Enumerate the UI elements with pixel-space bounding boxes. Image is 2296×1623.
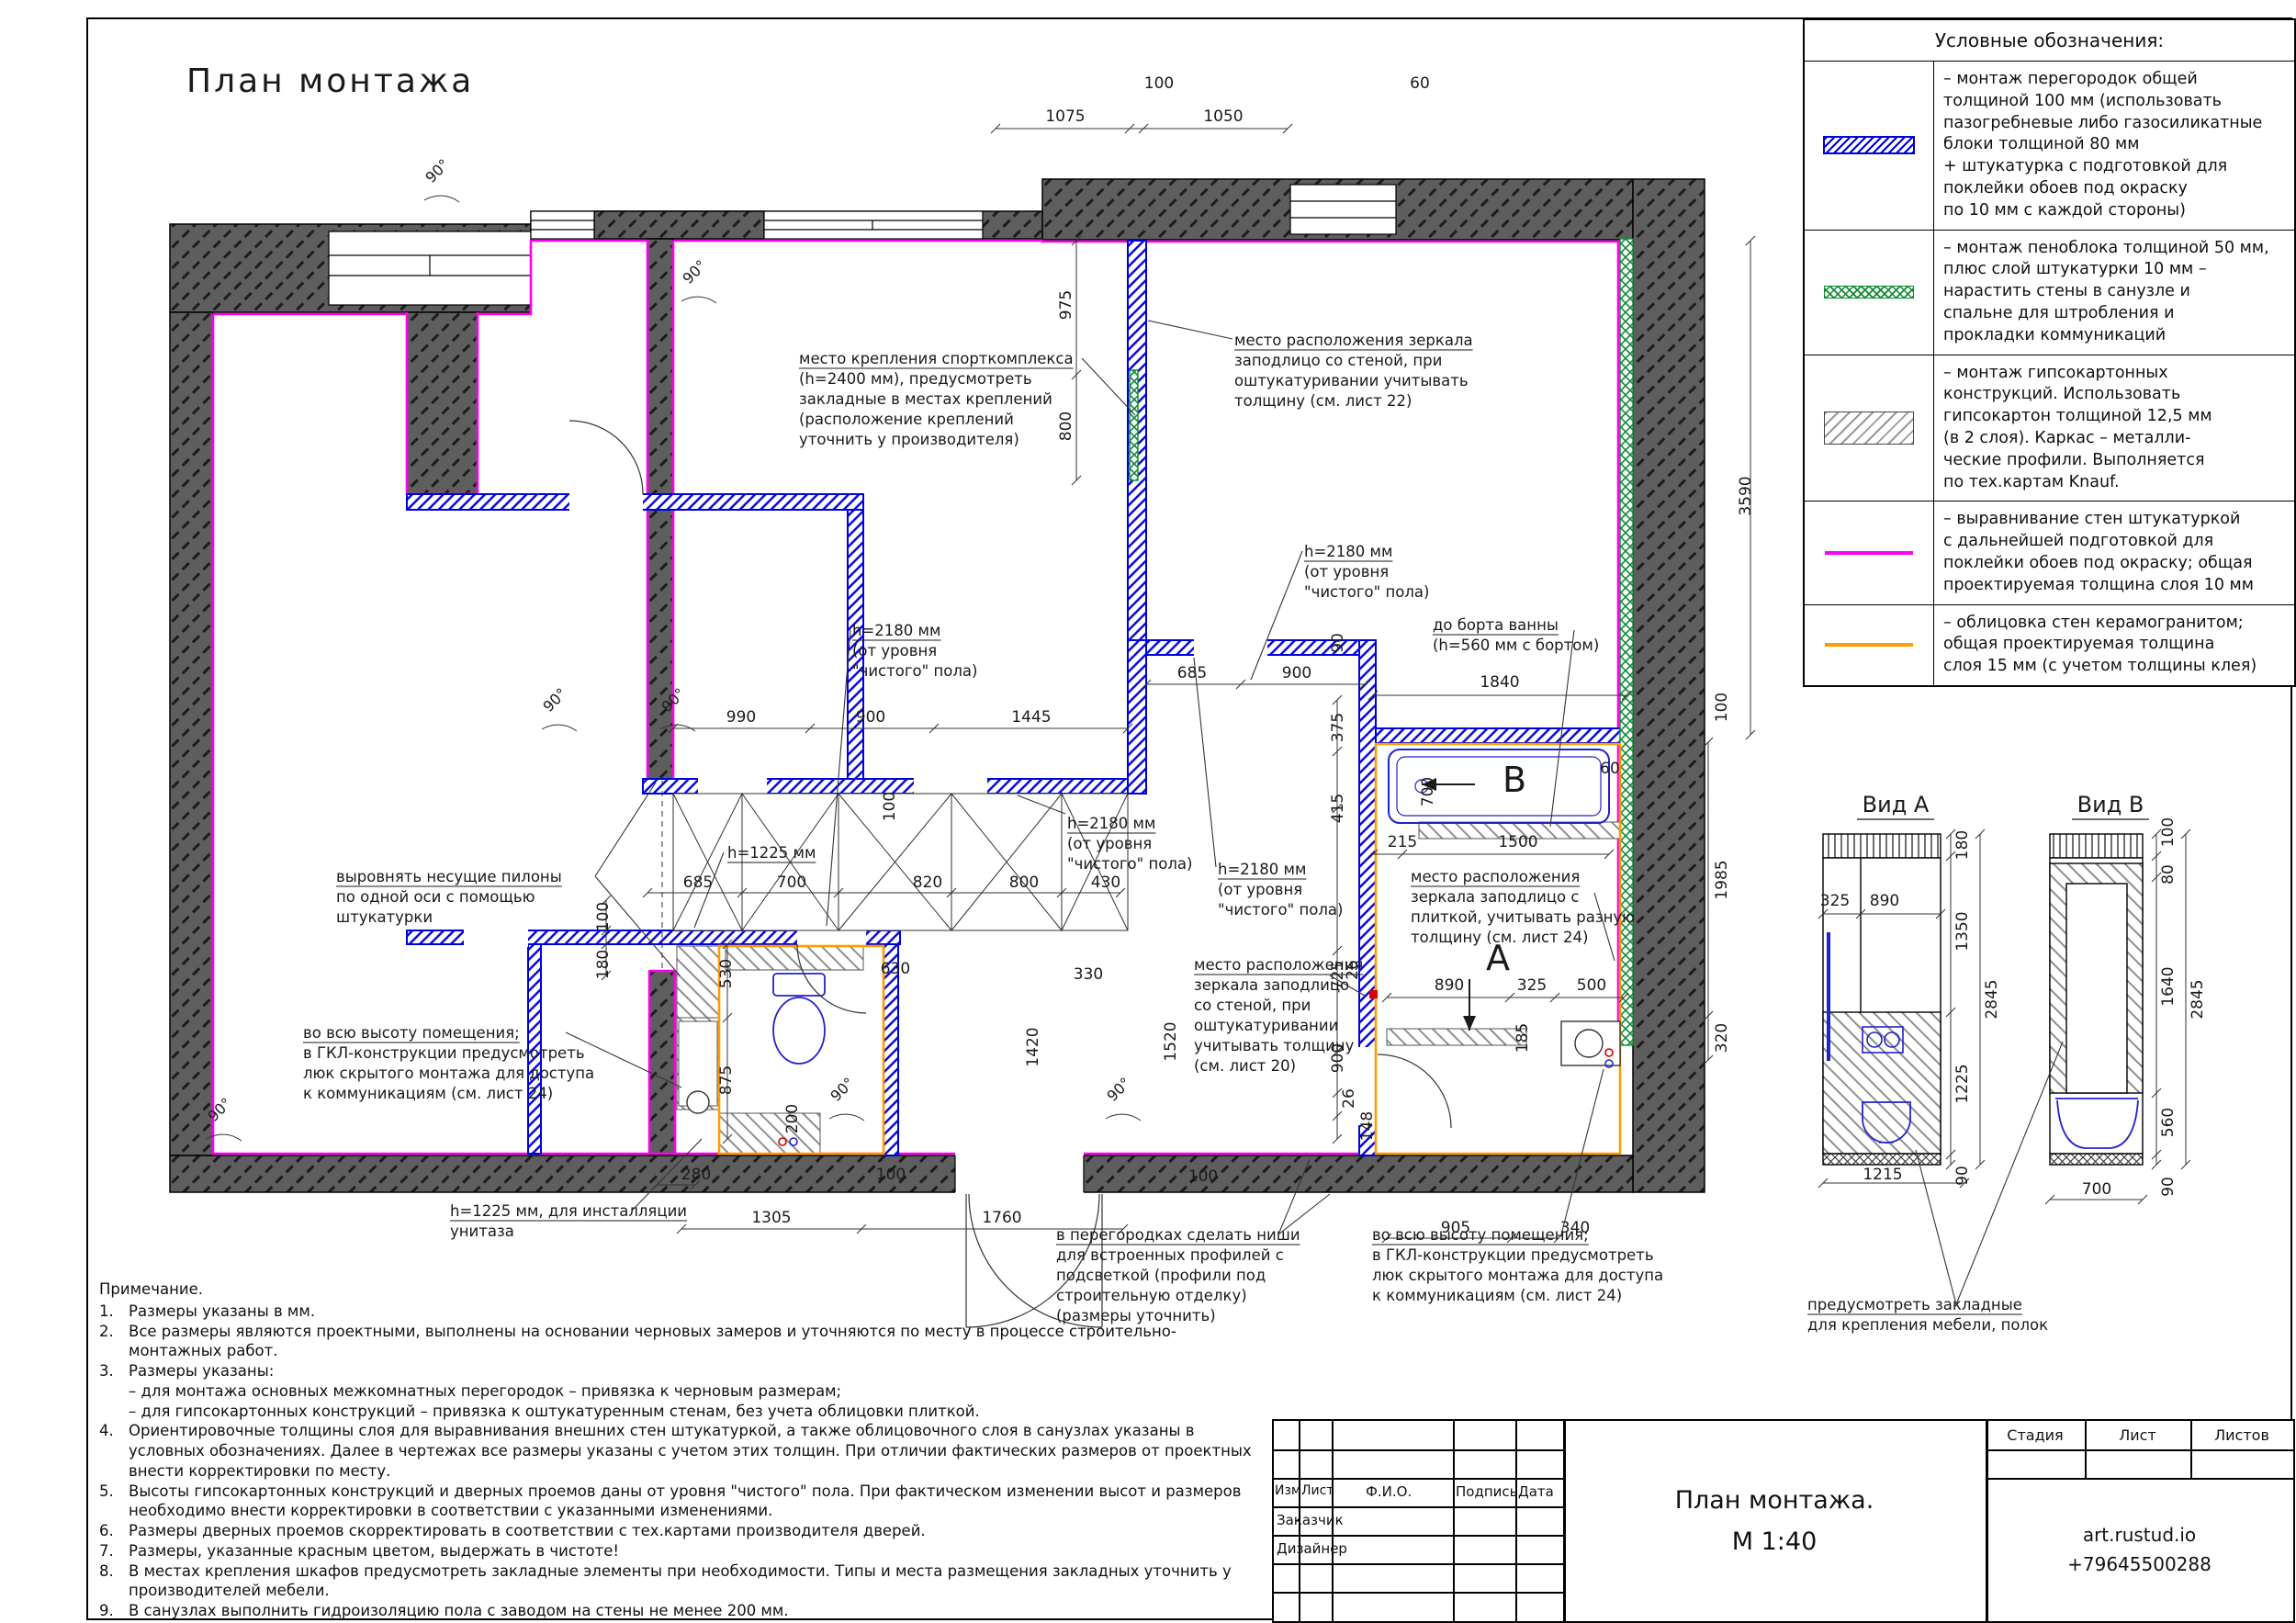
angle-label: 90° [539, 684, 569, 715]
annotation-line: (h=2400 мм), предусмотреть [799, 370, 1032, 388]
dimension-label: 1075 [1045, 107, 1085, 126]
dimension-label: 1500 [1498, 833, 1537, 851]
dimension-label: 3590 [1737, 476, 1755, 515]
tb-drawing-title: План монтажа. М 1:40 [1563, 1421, 1986, 1621]
annotation-line: в ГКЛ-конструкции предусмотреть [303, 1044, 585, 1062]
tb-col-listov: Листов [2190, 1426, 2293, 1444]
dimension-label: 100 [881, 792, 899, 821]
tb-brand-phone: +79645500288 [2067, 1553, 2212, 1575]
note-item: – для гипсокартонных конструкций – привя… [129, 1402, 1258, 1422]
dimension-label: 415 [1329, 794, 1347, 823]
dimension-label: 330 [1074, 965, 1103, 984]
legend-item-text: – облицовка стен керамогранитом; общая п… [1934, 605, 2294, 685]
dimension-label: 2845 [1983, 979, 2001, 1019]
note-item: 4.Ориентировочные толщины слоя для вырав… [99, 1421, 1258, 1481]
dimension-label: 890 [1870, 892, 1899, 910]
note-text: Размеры указаны: [129, 1361, 274, 1381]
leader-line [1194, 658, 1216, 867]
dimension-label: 1640 [2159, 966, 2178, 1006]
tb-brand: art.rustud.io +79645500288 [1986, 1478, 2293, 1621]
note-text: Все размеры являются проектными, выполне… [129, 1322, 1258, 1362]
note-number: 8. [99, 1561, 129, 1602]
dimension-label: 1225 [1953, 1064, 1972, 1103]
annotation-note: h=2180 мм(от уровня"чистого" пола) [1194, 658, 1343, 919]
annotation-line: выровнять несущие пилоны [336, 868, 562, 885]
dimension-label: 1350 [1953, 911, 1972, 951]
annotation-line: h=1225 мм [727, 844, 816, 862]
annotation-line: по одной оси с помощью [336, 888, 535, 906]
note-number: 5. [99, 1482, 129, 1522]
dimension-label: 100 [594, 902, 613, 931]
red-embed-mark [1369, 990, 1378, 998]
view-b-drawing [2050, 834, 2143, 1165]
title-block: Изм. Лист Ф.И.О. Подпись Дата Заказчик Д… [1272, 1419, 2295, 1623]
annotation-line: оштукатуривании [1194, 1017, 1338, 1034]
annotation-line: закладные в местах креплений [799, 390, 1052, 408]
angle-arc [424, 196, 459, 202]
note-item: 3.Размеры указаны: [99, 1361, 1258, 1381]
dimension-label: 900 [1282, 664, 1311, 682]
legend-item: – выравнивание стен штукатуркой с дальне… [1805, 502, 2294, 604]
dimension-label: 200 [783, 1104, 802, 1133]
tb-row-zakazchik: Заказчик [1277, 1512, 1344, 1528]
section-letter: A [1486, 938, 1510, 978]
dimension-label: 700 [777, 873, 806, 892]
annotation-note: во всю высоту помещения;в ГКЛ-конструкци… [303, 1024, 681, 1102]
legend-item: – монтаж гипсокартонных конструкций. Исп… [1805, 355, 2294, 502]
dimension-label: 800 [1057, 411, 1075, 441]
dimension-label: 1050 [1203, 107, 1243, 126]
note-number: 1. [99, 1302, 129, 1322]
angle-arc [829, 1114, 864, 1121]
leader-line [1916, 1150, 1956, 1304]
dimension-label: 325 [1820, 892, 1850, 910]
dimension-label: 1305 [751, 1209, 791, 1227]
dimension-label: 530 [717, 959, 736, 988]
tb-col-fio: Ф.И.О. [1366, 1483, 1412, 1500]
annotation-line: к коммуникациям (см. лист 24) [1372, 1287, 1622, 1304]
dimension-label: 90 [1329, 633, 1347, 653]
note-number: 6. [99, 1521, 129, 1541]
note-text: Высоты гипсокартонных конструкций и двер… [129, 1482, 1258, 1522]
tb-row-dizayner: Дизайнер [1277, 1540, 1347, 1557]
leader-line [1561, 1069, 1604, 1234]
note-item: 2.Все размеры являются проектными, выпол… [99, 1322, 1258, 1362]
dimension-label: 90 [2159, 1177, 2178, 1197]
annotation-line: (от уровня [1067, 835, 1152, 852]
tb-col-list: Лист [1301, 1483, 1334, 1498]
annotation-line: "чистого" пола) [1304, 583, 1429, 601]
tb-brand-site: art.rustud.io [2083, 1524, 2196, 1546]
tb-col-podpis: Подпись [1456, 1483, 1517, 1500]
tb-col-izm: Изм. [1275, 1483, 1305, 1498]
note-text: Размеры дверных проемов скорректировать … [129, 1521, 926, 1541]
annotation-line: (от уровня [1304, 563, 1389, 580]
dimension-label: 60 [1410, 74, 1430, 93]
window-icon [764, 211, 983, 239]
dimension-label: 1445 [1011, 708, 1051, 727]
note-item: 5.Высоты гипсокартонных конструкций и дв… [99, 1482, 1258, 1522]
angle-label: 90° [422, 155, 452, 186]
leader-line [1148, 321, 1232, 339]
note-text: Ориентировочные толщины слоя для выравни… [129, 1421, 1258, 1481]
view-title-b: Вид В [2077, 792, 2144, 817]
gypsum-hatch-swatch-icon [1824, 411, 1914, 445]
window-icon [329, 231, 531, 305]
dimension-label: 100 [1188, 1167, 1218, 1186]
legend-item: – монтаж перегородок общей толщиной 100 … [1805, 62, 2294, 231]
legend-title: Условные обозначения: [1805, 20, 2294, 62]
note-text: В санузлах выполнить гидроизоляцию пола … [129, 1601, 789, 1621]
view-a-drawing [1823, 834, 1941, 1165]
note-text: Размеры, указанные красным цветом, выдер… [129, 1541, 619, 1561]
note-text: – для монтажа основных межкомнатных пере… [129, 1381, 841, 1402]
dimension-label: 100 [876, 1166, 906, 1184]
annotation-line: место крепления спорткомплекса [799, 350, 1074, 367]
access-hatch [679, 1021, 717, 1113]
drawing-sheet: { "title": "План монтажа", "legend": { "… [0, 0, 2296, 1623]
legend-item-text: – выравнивание стен штукатуркой с дальне… [1934, 502, 2294, 603]
leader-line [1278, 1194, 1330, 1234]
dimension-label: 875 [717, 1065, 736, 1095]
note-text: – для гипсокартонных конструкций – привя… [129, 1402, 980, 1422]
dimension-line [1368, 691, 1631, 700]
legend-item: – монтаж пеноблока толщиной 50 мм, плюс … [1805, 231, 2294, 355]
dimension-label: 800 [1009, 873, 1039, 892]
dimension-label: 80 [2159, 864, 2178, 885]
annotation-line: оштукатуривании учитывать [1234, 372, 1469, 389]
dimension-label: 430 [1091, 873, 1120, 892]
dimension-label: 1215 [1863, 1166, 1902, 1184]
tb-col-list2: Лист [2085, 1426, 2190, 1444]
annotation-line: для крепления мебели, полок [1807, 1316, 2048, 1334]
annotation-line: зеркала заподлицо с [1411, 888, 1579, 906]
annotation-line: штукатурки [336, 908, 433, 926]
note-item: 9.В санузлах выполнить гидроизоляцию пол… [99, 1601, 1258, 1621]
dimension-label: 1985 [1713, 860, 1731, 899]
tb-title-line1: План монтажа. [1675, 1486, 1874, 1515]
dimension-label: 1760 [982, 1209, 1021, 1227]
dimension-label: 900 [856, 708, 885, 727]
blue-hatch-swatch-icon [1823, 136, 1915, 154]
annotation-line: "чистого" пола) [1218, 901, 1343, 919]
dimension-label: 2845 [2189, 979, 2207, 1019]
note-item: 1.Размеры указаны в мм. [99, 1302, 1258, 1322]
dimension-label: 100 [2159, 817, 2178, 847]
angle-arc [1106, 1114, 1141, 1121]
legend-item-text: – монтаж гипсокартонных конструкций. Исп… [1934, 355, 2294, 502]
dimension-label: 375 [1329, 713, 1347, 742]
annotation-line: учитывать толщину [1194, 1037, 1355, 1054]
dimension-label: 215 [1388, 833, 1417, 851]
dimension-label: 180 [1953, 830, 1972, 860]
dimension-label: 685 [683, 873, 713, 892]
dimension-line [1333, 695, 1342, 1144]
annotation-line: заподлицо со стеной, при [1234, 352, 1442, 369]
annotation-line: h=1225 мм, для инсталляции [450, 1202, 687, 1220]
annotation-line: h=2180 мм [1218, 861, 1306, 878]
dimension-label: 100 [1144, 74, 1174, 93]
annotation-line: "чистого" пола) [1067, 855, 1192, 873]
dimension-label: 280 [681, 1166, 711, 1184]
dimension-label: 90 [1953, 1166, 1972, 1186]
leader-line [1594, 893, 1615, 961]
annotation-line: в перегородках сделать ниши [1056, 1226, 1300, 1244]
annotation-line: в ГКЛ-конструкции предусмотреть [1372, 1246, 1654, 1264]
dimension-label: 320 [1713, 1023, 1731, 1053]
leader-line [595, 783, 656, 876]
note-text: Размеры указаны в мм. [129, 1302, 315, 1322]
dimension-line [991, 124, 1292, 133]
note-item: – для монтажа основных межкомнатных пере… [129, 1381, 1258, 1402]
annotation-line: зеркала заподлицо [1194, 976, 1349, 994]
annotation-line: к коммуникациям (см. лист 24) [303, 1085, 553, 1102]
leader-line [1956, 1042, 2063, 1304]
dimension-line [1946, 829, 1955, 1169]
note-number: 7. [99, 1541, 129, 1561]
annotation-line: во всю высоту помещения; [1372, 1226, 1589, 1244]
annotation-line: люк скрытого монтажа для доступа [1372, 1267, 1663, 1284]
legend-item: – облицовка стен керамогранитом; общая п… [1805, 605, 2294, 685]
annotation-line: унитаза [450, 1223, 514, 1240]
dimension-label: 990 [726, 708, 756, 727]
note-number: 2. [99, 1322, 129, 1362]
leader-line [1251, 551, 1302, 680]
section-mark-b: B [1422, 760, 1526, 800]
section-mark-a: A [1463, 938, 1510, 1031]
annotation-line: толщину (см. лист 22) [1234, 392, 1412, 410]
note-text: В местах крепления шкафов предусмотреть … [129, 1561, 1258, 1602]
note-number: 9. [99, 1601, 129, 1621]
dimension-label: 630 [881, 960, 910, 978]
annotation-line: (от уровня [852, 642, 937, 659]
dimension-label: 975 [1057, 290, 1075, 320]
annotation-line: "чистого" пола) [852, 662, 977, 680]
annotation-note: место расположения зеркалазаподлицо со с… [1148, 321, 1473, 410]
orange-line-swatch-icon [1825, 643, 1913, 647]
annotation-line: (см. лист 20) [1194, 1057, 1296, 1075]
dimension-label: 700 [2082, 1180, 2111, 1199]
dimension-label: 560 [2159, 1108, 2178, 1137]
note-number: 4. [99, 1421, 129, 1481]
annotation-note: место расположениязеркала заподлицо спли… [1411, 868, 1635, 961]
angle-label: 90° [1103, 1074, 1133, 1104]
legend-item-text: – монтаж перегородок общей толщиной 100 … [1934, 62, 2294, 230]
annotation-line: (расположение креплений [799, 411, 1014, 428]
green-crosshatch-swatch-icon [1824, 286, 1914, 299]
note-item: 7.Размеры, указанные красным цветом, выд… [99, 1541, 1258, 1561]
tb-col-data: Дата [1518, 1483, 1554, 1500]
annotation-line: место расположения зеркала [1234, 332, 1473, 349]
dimension-label: 1840 [1480, 673, 1519, 692]
dimension-label: 1520 [1162, 1021, 1180, 1061]
dimension-label: 26 [1340, 1088, 1358, 1109]
note-item: 6.Размеры дверных проемов скорректироват… [99, 1521, 1258, 1541]
annotation-line: предусмотреть закладные [1807, 1296, 2022, 1313]
annotation-line: люк скрытого монтажа для доступа [303, 1065, 594, 1082]
dimension-label: 100 [1713, 693, 1731, 722]
note-item: 8.В местах крепления шкафов предусмотрет… [99, 1561, 1258, 1602]
drain-icon [687, 1091, 709, 1113]
annotation-line: для встроенных профилей с [1056, 1246, 1284, 1264]
dimension-label: 820 [913, 873, 942, 892]
dimension-line [1142, 680, 1369, 689]
angle-label: 90° [827, 1074, 857, 1104]
annotation-line: место расположения [1194, 956, 1363, 974]
dimension-label: 325 [1517, 976, 1547, 995]
angle-arc [542, 725, 577, 731]
angle-arc [681, 297, 716, 303]
toilet-icon [773, 974, 825, 1064]
dimension-label: 890 [1435, 976, 1464, 995]
annotation-line: уточнить у производителя) [799, 431, 1019, 448]
annotation-line: (h=560 мм с бортом) [1433, 637, 1599, 654]
dimension-label: 185 [1514, 1023, 1532, 1053]
annotation-line: h=2180 мм [1067, 815, 1155, 832]
page-title: План монтажа [186, 62, 474, 100]
dimension-label: 500 [1577, 976, 1606, 995]
notes-block: Примечание. 1.Размеры указаны в мм.2.Все… [99, 1279, 1258, 1621]
dimension-label: 148 [1358, 1111, 1377, 1141]
annotation-line: во всю высоту помещения; [303, 1024, 520, 1042]
notes-title: Примечание. [99, 1279, 1258, 1300]
annotation-note: место крепления спорткомплекса(h=2400 мм… [799, 350, 1135, 448]
annotation-note: h=2180 мм(от уровня"чистого" пола) [1251, 543, 1429, 680]
dimension-label: 180 [594, 950, 613, 979]
sink-icon [1561, 1021, 1620, 1065]
annotation-line: до борта ванны [1433, 616, 1559, 634]
tb-col-stadiya: Стадия [1986, 1426, 2085, 1444]
angle-label: 90° [679, 256, 709, 287]
note-number: 3. [99, 1361, 129, 1381]
window-icon [531, 211, 594, 239]
legend-box: Условные обозначения: – монтаж перегород… [1803, 18, 2296, 687]
view-title-a: Вид А [1863, 792, 1930, 817]
dimension-label: 60 [1600, 760, 1620, 778]
annotation-line: h=2180 мм [852, 622, 940, 639]
annotation-line: со стеной, при [1194, 997, 1311, 1014]
annotation-line: место расположения [1411, 868, 1580, 885]
dimension-label: 685 [1177, 664, 1207, 682]
dimension-label: 1420 [1024, 1027, 1042, 1066]
annotation-line: (от уровня [1218, 881, 1302, 898]
magenta-line-swatch-icon [1825, 551, 1913, 555]
annotation-line: h=2180 мм [1304, 543, 1392, 560]
window-icon [1290, 185, 1396, 234]
tb-title-line2: М 1:40 [1732, 1527, 1818, 1556]
section-letter: B [1503, 760, 1526, 800]
legend-item-text: – монтаж пеноблока толщиной 50 мм, плюс … [1934, 231, 2294, 355]
